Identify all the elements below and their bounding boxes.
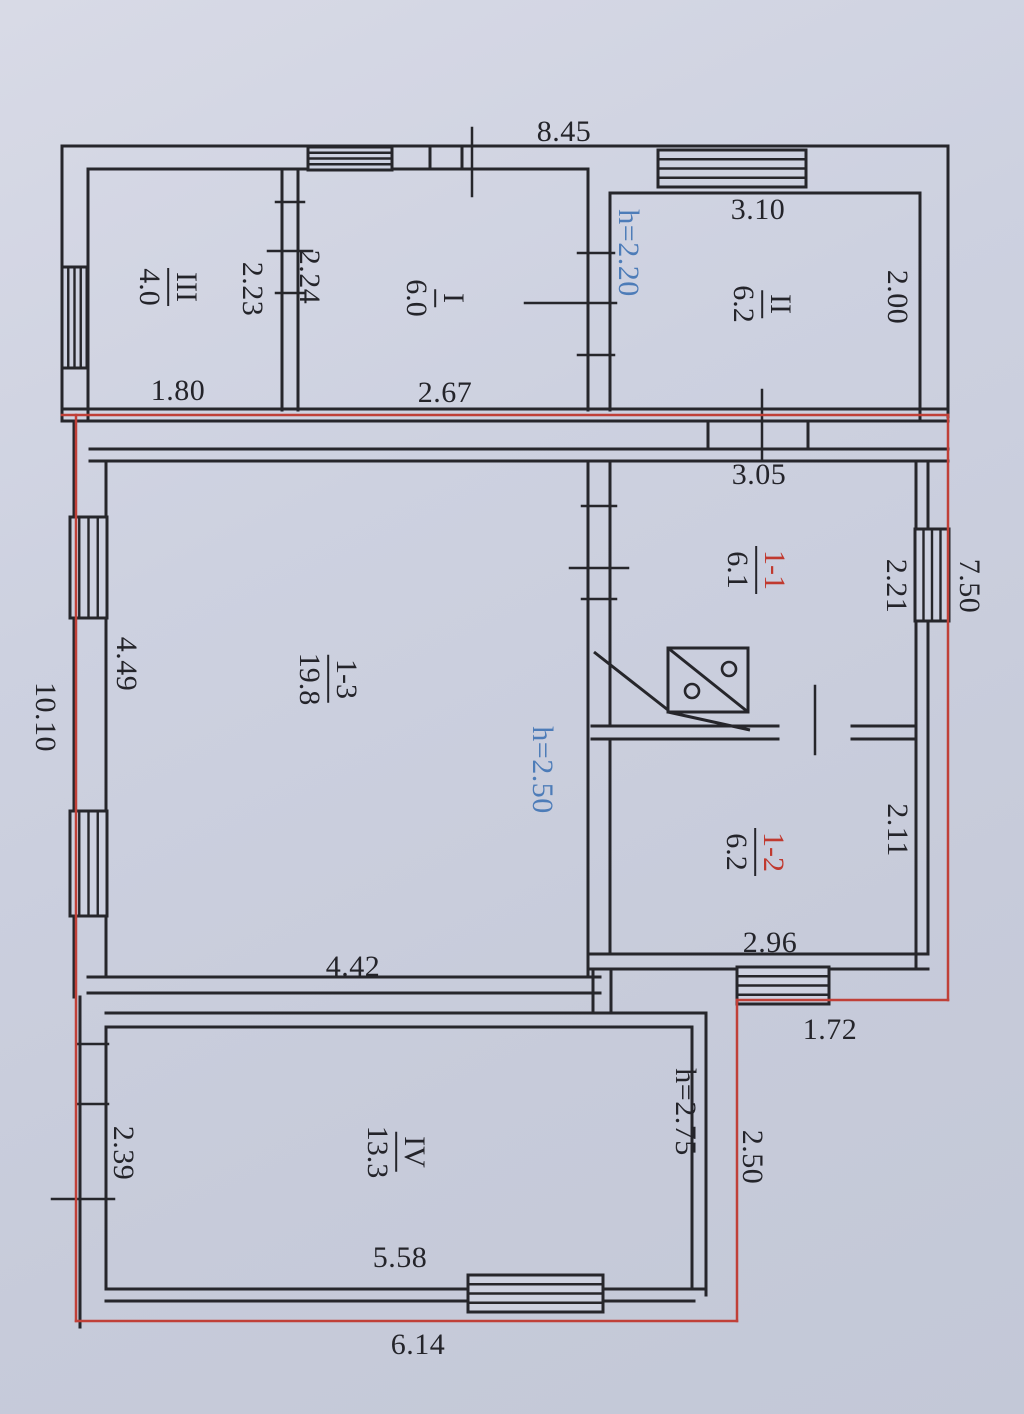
room-label-1-1: 1-16.1: [722, 546, 790, 594]
dimension-label-2-00: 2.00: [882, 270, 912, 325]
window-hatch: [468, 1275, 603, 1312]
room-area: 6.1: [722, 551, 755, 589]
room-label-1-2: 1-26.2: [721, 828, 789, 876]
dimension-label-3-10: 3.10: [731, 195, 786, 225]
room-label-IV: IV13.3: [362, 1126, 430, 1179]
window-hatch: [915, 529, 949, 621]
dimension-label-6-14: 6.14: [391, 1330, 446, 1360]
room-label-III: III4.0: [134, 268, 202, 306]
window-hatch: [737, 967, 829, 1004]
room-number: IV: [395, 1132, 430, 1172]
dimension-label-4-42: 4.42: [326, 952, 381, 982]
dimension-label-5-58: 5.58: [373, 1243, 428, 1273]
room-area: 13.3: [362, 1126, 395, 1179]
dimension-label-2-23: 2.23: [237, 262, 267, 317]
floorplan: 8.453.102.002.232.24h=2.201.802.673.052.…: [0, 0, 1024, 1414]
dimension-label-2-24: 2.24: [294, 250, 324, 305]
window-hatch: [658, 150, 806, 187]
dimension-label-1-72: 1.72: [803, 1015, 858, 1045]
dimension-label-4-49: 4.49: [111, 637, 141, 692]
dimension-label-2-21: 2.21: [881, 559, 911, 614]
room-area: 6.2: [728, 285, 761, 323]
room-number: 1-2: [754, 828, 789, 876]
window-hatch: [308, 147, 392, 170]
dimension-label-2-50: 2.50: [737, 1130, 767, 1185]
dimension-label-2-96: 2.96: [743, 928, 798, 958]
window-hatch: [62, 267, 87, 368]
dimension-label-7-50: 7.50: [954, 559, 984, 614]
room-area: 6.0: [401, 279, 434, 317]
room-area: 19.8: [294, 653, 327, 706]
room-label-1-3: 1-319.8: [294, 653, 362, 706]
dimension-label-3-05: 3.05: [732, 460, 787, 490]
dimension-label-2-67: 2.67: [418, 378, 473, 408]
room-label-I: I6.0: [401, 279, 469, 317]
dimension-label-h-2-50: h=2.50: [527, 726, 557, 813]
dimension-label-h-2-20: h=2.20: [613, 209, 643, 296]
room-number: I: [434, 289, 469, 307]
stove-symbol: [594, 648, 750, 730]
dimension-label-8-45: 8.45: [537, 117, 592, 147]
room-number: II: [761, 290, 796, 318]
room-label-II: II6.2: [728, 285, 796, 323]
room-number: 1-1: [755, 546, 790, 594]
room-number: III: [167, 268, 202, 306]
dimension-label-h-2-75: h=2.75: [670, 1068, 700, 1155]
floorplan-drawing: [0, 0, 1024, 1414]
dimension-label-2-11: 2.11: [882, 803, 912, 856]
room-area: 6.2: [721, 833, 754, 871]
dimension-label-10-10: 10.10: [30, 682, 60, 752]
room-number: 1-3: [327, 655, 362, 703]
dimension-label-1-80: 1.80: [151, 376, 206, 406]
dimension-label-2-39: 2.39: [108, 1126, 138, 1181]
room-area: 4.0: [134, 268, 167, 306]
